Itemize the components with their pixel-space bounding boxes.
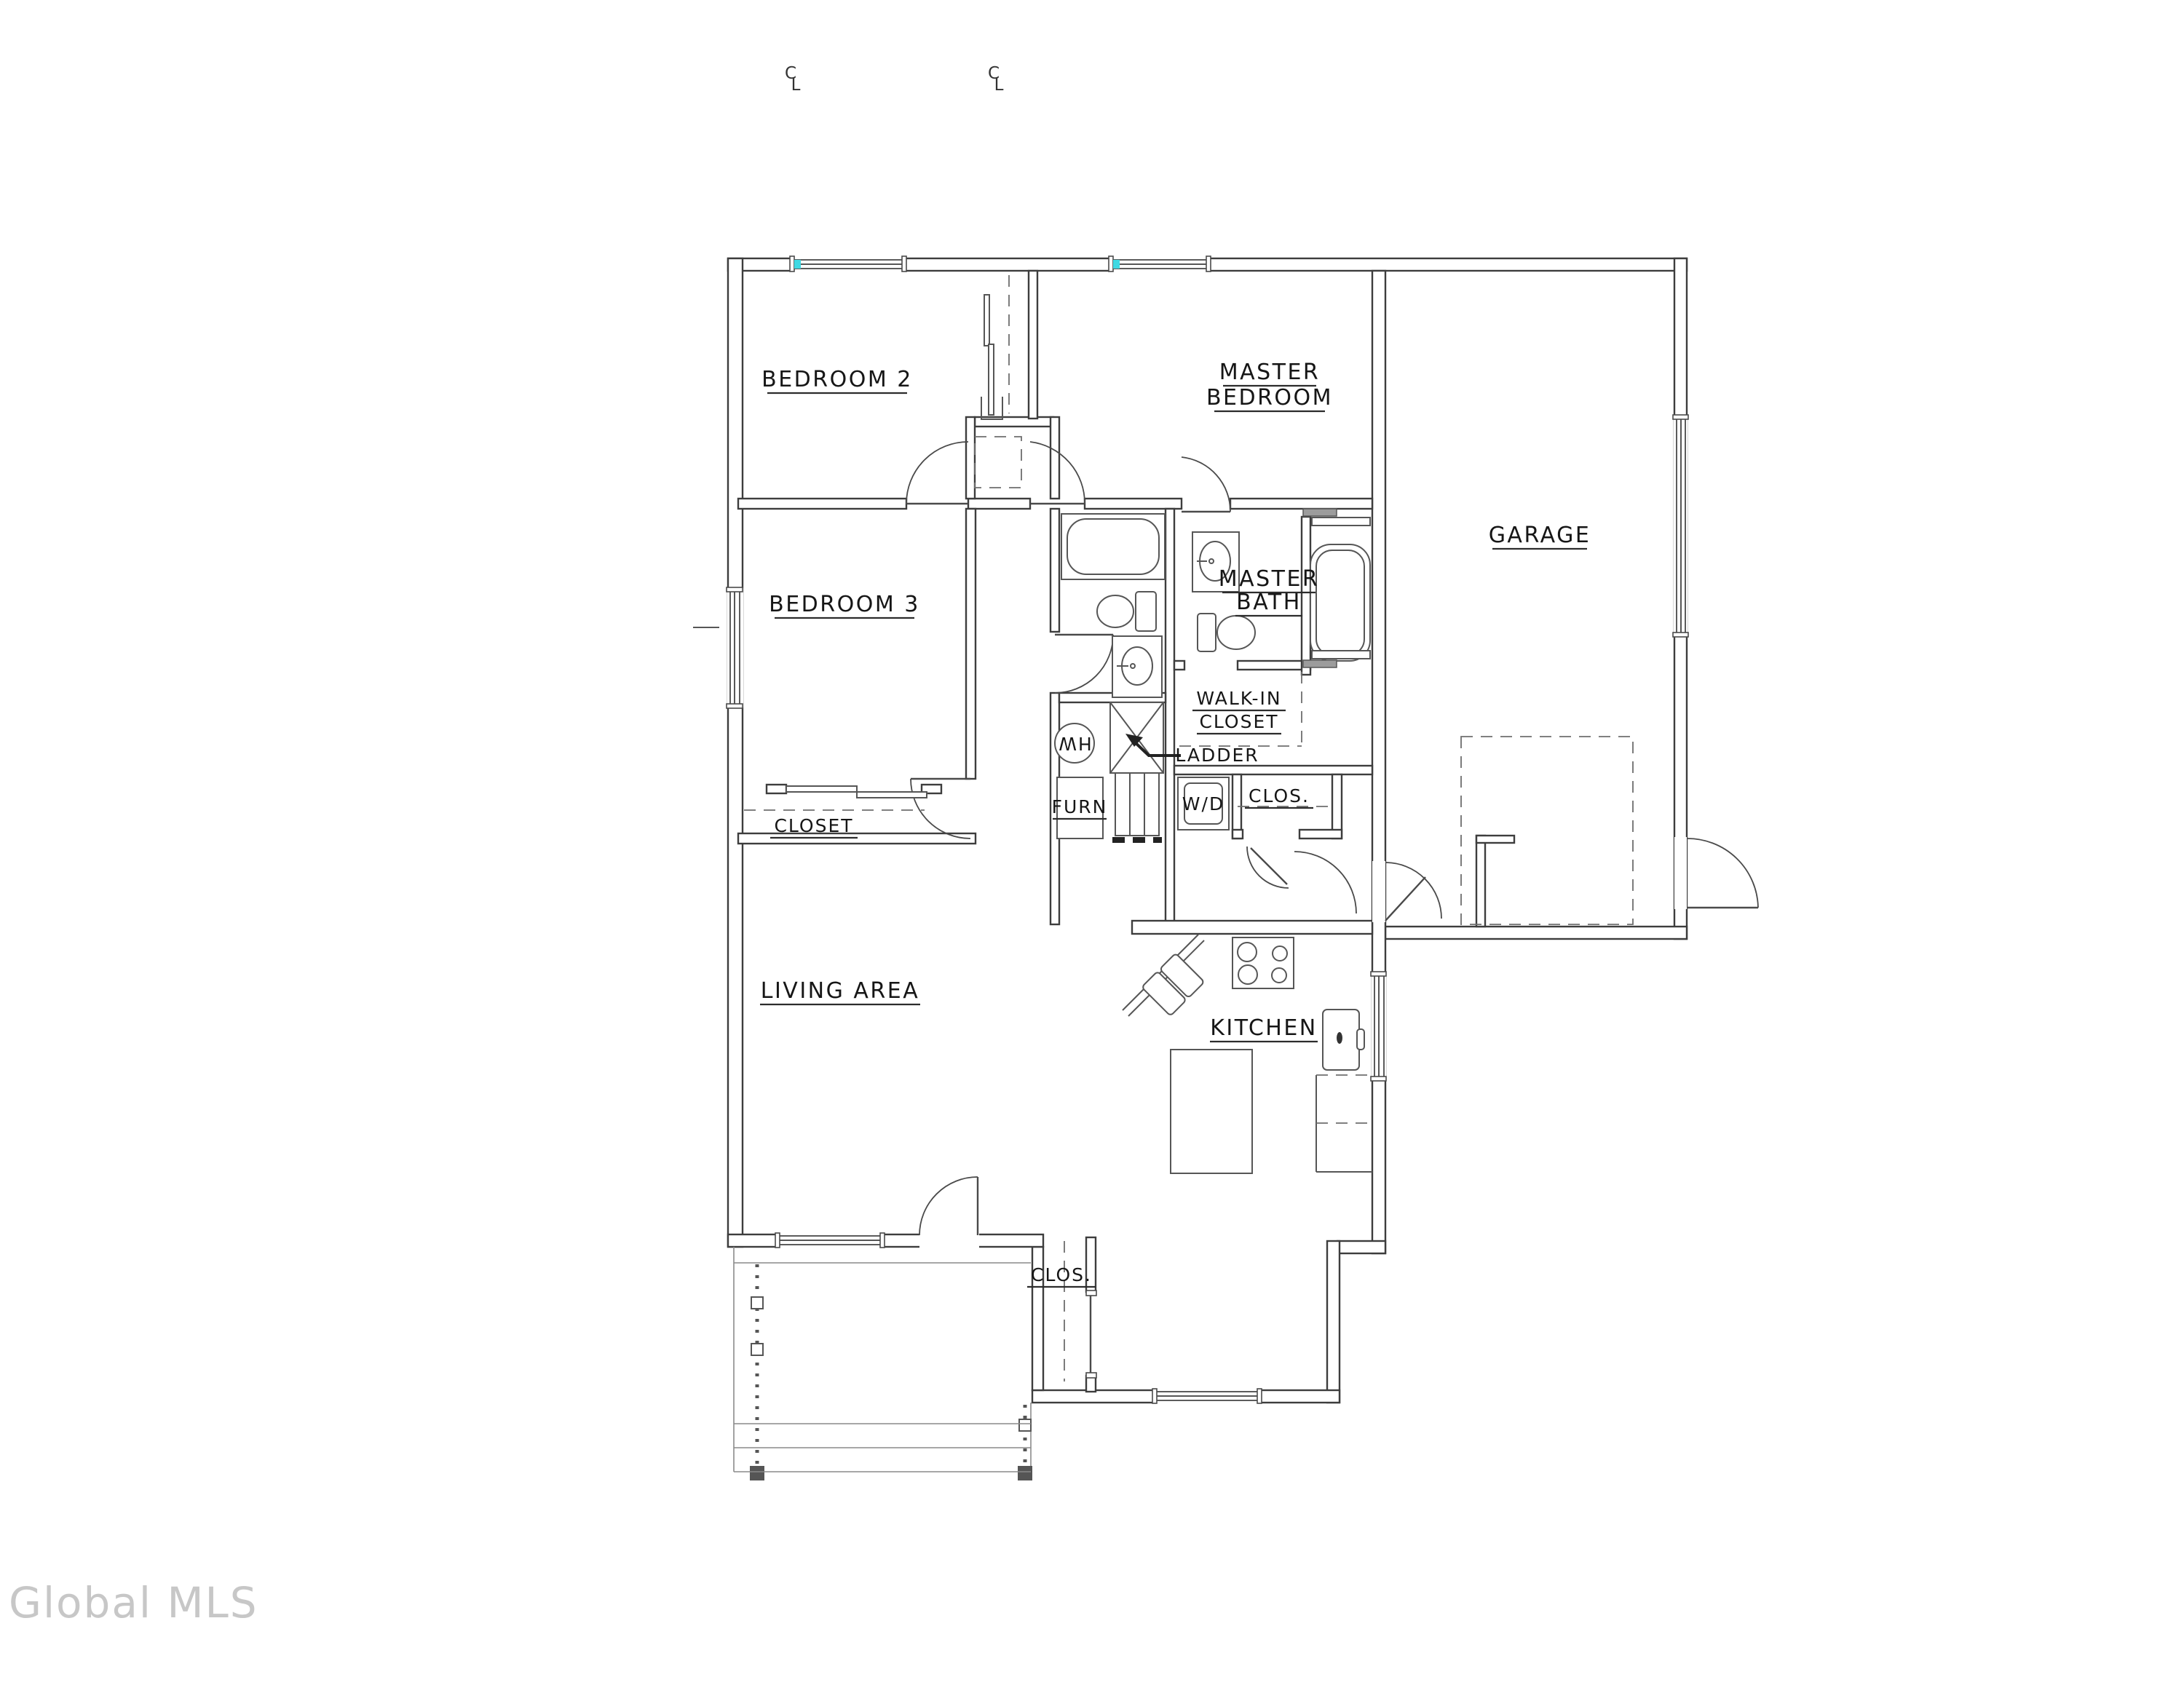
label-ladder: LADDER: [1175, 745, 1259, 766]
porch-corner-post: [1018, 1466, 1032, 1480]
label-washer-dryer: W/D: [1182, 793, 1224, 814]
room-label-closet-bedroom3: CLOSET: [774, 815, 853, 836]
centerline-icon: L: [791, 76, 801, 95]
centerline-icon: L: [994, 76, 1004, 95]
counter-dashed: [1316, 1075, 1372, 1172]
porch-steps: [734, 1424, 1031, 1472]
toilet-tank: [1136, 592, 1156, 631]
room-label-bedroom3: BEDROOM 3: [769, 592, 920, 617]
door-hall-to-mudroom: [1247, 847, 1356, 913]
room-label-closet-entry: CLOS.: [1031, 1264, 1092, 1285]
room-label-walkin-line2: CLOSET: [1199, 711, 1278, 732]
room-label-master-bath-line2: BATH: [1236, 590, 1302, 615]
kitchen-fixtures: [1123, 935, 1372, 1173]
towel-shelf: [1303, 660, 1337, 667]
stove: [1233, 937, 1294, 988]
window-living-south: [775, 1232, 885, 1250]
door-garage-side: [1687, 838, 1758, 908]
kitchen-island: [1171, 1050, 1252, 1173]
door-master-bath: [1182, 457, 1230, 512]
garage-dashed-area: [1461, 737, 1633, 924]
sliding-door-panel: [989, 344, 994, 415]
door-front-entry: [919, 1177, 978, 1235]
alcove-dashed-square: [975, 437, 1021, 488]
centerline-symbols: C L C L: [785, 64, 1004, 95]
porch-corner-post: [750, 1466, 764, 1480]
door-entry-closet: [1086, 1290, 1096, 1378]
window-kitchen-east: [1371, 972, 1386, 1081]
window-entry-south: [1152, 1387, 1262, 1406]
toilet-bowl: [1217, 616, 1255, 649]
room-label-bedroom2: BEDROOM 2: [761, 367, 913, 392]
porch-post: [1019, 1419, 1031, 1431]
toilet-bowl: [1097, 595, 1133, 627]
porch-post: [751, 1297, 763, 1309]
towel-shelf: [1303, 509, 1337, 516]
bathtub-inner: [1067, 519, 1159, 574]
watermark: Global MLS: [9, 1578, 258, 1627]
attic-ladder-hatch: [1110, 702, 1163, 840]
window-bedroom3-west: [693, 587, 743, 708]
floor-plan-page: C L C L BEDROOM 2 MASTER BEDROOM BEDROOM…: [0, 0, 2184, 1685]
room-label-closet-hall: CLOS.: [1249, 785, 1310, 806]
toilet-tank: [1198, 614, 1216, 651]
room-label-master-bath-line1: MASTER: [1219, 566, 1320, 592]
bathtub-inner: [1316, 550, 1364, 655]
window-garage-east: [1673, 415, 1688, 637]
wall-openings: [919, 837, 1687, 1248]
room-label-garage: GARAGE: [1489, 523, 1591, 548]
label-water-heater: HW: [1057, 733, 1092, 754]
window-bedroom2-north: [790, 256, 906, 272]
sliding-door-panel: [786, 786, 857, 792]
label-furnace: FURN: [1052, 796, 1108, 817]
towel-shelf: [1312, 651, 1370, 659]
porch: [734, 1247, 1032, 1480]
floor-plan-drawing: C L C L BEDROOM 2 MASTER BEDROOM BEDROOM…: [0, 0, 2184, 1685]
fridge-latch: [1337, 1032, 1342, 1044]
double-sink: [1142, 953, 1204, 1016]
porch-post: [751, 1344, 763, 1355]
window-marker-icon: [1113, 260, 1120, 269]
room-label-walkin-line1: WALK-IN: [1196, 688, 1281, 709]
window-master-north: [1109, 256, 1211, 272]
fridge-handle: [1357, 1029, 1364, 1050]
towel-shelf: [1312, 518, 1370, 526]
hall-bath-fixtures: [1061, 514, 1165, 697]
door-hall-bath: [1055, 635, 1113, 693]
sliding-door-panel: [857, 792, 927, 798]
refrigerator: [1323, 1010, 1364, 1070]
door-house-to-garage: [1385, 863, 1441, 921]
sliding-door-panel: [984, 295, 989, 346]
room-label-master-bedroom-line1: MASTER: [1219, 360, 1321, 385]
room-label-master-bedroom-line2: BEDROOM: [1206, 385, 1333, 411]
window-marker-icon: [794, 260, 801, 269]
room-label-living-area: LIVING AREA: [761, 978, 920, 1004]
room-label-kitchen: KITCHEN: [1210, 1015, 1318, 1041]
door-bedroom2: [906, 442, 968, 504]
